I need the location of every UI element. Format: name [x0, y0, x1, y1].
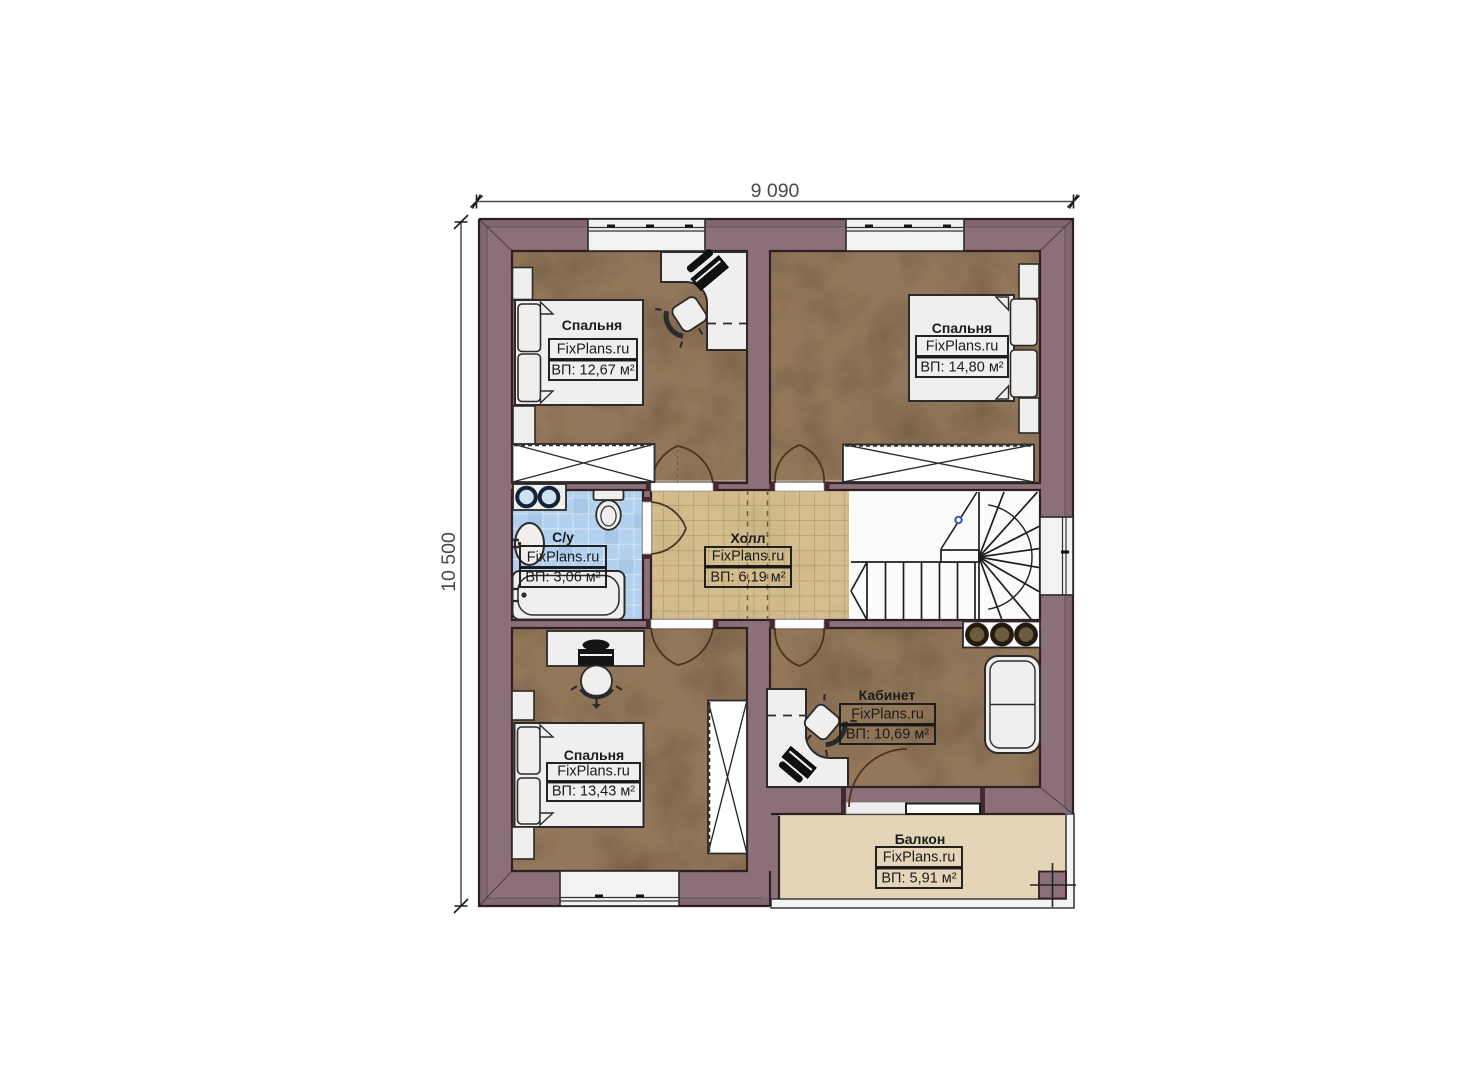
svg-text:Кабинет: Кабинет — [859, 687, 916, 703]
svg-text:FixPlans.ru: FixPlans.ru — [851, 707, 924, 723]
svg-text:С/у: С/у — [552, 529, 574, 545]
svg-text:Спальня: Спальня — [564, 747, 624, 763]
svg-text:FixPlans.ru: FixPlans.ru — [883, 850, 956, 866]
svg-text:FixPlans.ru: FixPlans.ru — [557, 764, 630, 780]
svg-text:FixPlans.ru: FixPlans.ru — [527, 550, 600, 566]
svg-text:Балкон: Балкон — [895, 831, 946, 847]
svg-text:Спальня: Спальня — [562, 317, 622, 333]
svg-text:9 090: 9 090 — [751, 180, 800, 202]
svg-text:FixPlans.ru: FixPlans.ru — [712, 549, 785, 565]
svg-text:ВП: 10,69 м²: ВП: 10,69 м² — [846, 727, 929, 743]
svg-text:Спальня: Спальня — [932, 320, 992, 336]
svg-text:ВП: 5,91 м²: ВП: 5,91 м² — [881, 871, 956, 887]
svg-text:FixPlans.ru: FixPlans.ru — [557, 342, 630, 358]
svg-text:ВП: 13,43 м²: ВП: 13,43 м² — [552, 784, 635, 800]
svg-text:ВП: 14,80 м²: ВП: 14,80 м² — [920, 360, 1003, 376]
svg-text:10 500: 10 500 — [438, 532, 460, 592]
svg-text:ВП: 6,19 м²: ВП: 6,19 м² — [710, 570, 785, 586]
svg-text:FixPlans.ru: FixPlans.ru — [926, 339, 999, 355]
svg-text:ВП: 12,67 м²: ВП: 12,67 м² — [551, 363, 634, 379]
svg-text:ВП: 3,06 м²: ВП: 3,06 м² — [525, 570, 600, 586]
svg-text:Холл: Холл — [730, 530, 765, 546]
